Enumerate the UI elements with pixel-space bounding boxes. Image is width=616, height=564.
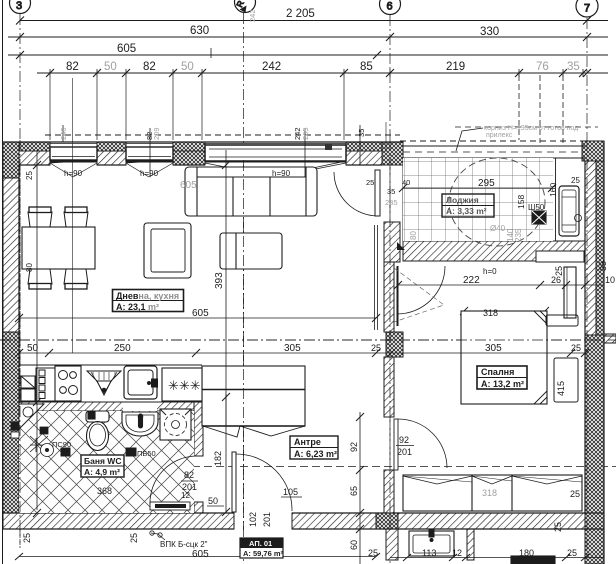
- svg-text:180: 180: [519, 548, 534, 558]
- svg-text:A: 3,33 m²: A: 3,33 m²: [446, 206, 487, 216]
- svg-text:295: 295: [478, 178, 495, 189]
- svg-text:605: 605: [180, 180, 197, 191]
- svg-text:35: 35: [598, 261, 608, 271]
- svg-text:7: 7: [584, 3, 590, 15]
- svg-text:прилекс: прилекс: [486, 132, 513, 139]
- svg-text:A: 13,2 m²: A: 13,2 m²: [481, 379, 524, 389]
- svg-text:182: 182: [213, 451, 223, 466]
- svg-text:250: 250: [114, 343, 131, 354]
- svg-text:40: 40: [402, 178, 410, 187]
- svg-text:Ø40: Ø40: [490, 224, 506, 233]
- svg-text:10: 10: [605, 275, 615, 285]
- svg-text:Лоджия: Лоджия: [446, 195, 479, 205]
- svg-text:209: 209: [152, 127, 161, 140]
- svg-text:158: 158: [516, 195, 526, 209]
- svg-text:50: 50: [104, 61, 117, 73]
- svg-text:35: 35: [567, 61, 580, 73]
- svg-text:25: 25: [571, 343, 581, 353]
- svg-text:102: 102: [248, 512, 258, 527]
- svg-text:201: 201: [262, 512, 272, 527]
- svg-text:25: 25: [368, 548, 378, 558]
- svg-text:A: 23,1 m²: A: 23,1 m²: [116, 302, 159, 312]
- svg-text:330: 330: [480, 26, 499, 38]
- svg-text:25: 25: [570, 489, 580, 499]
- svg-text:Дневна, кухня: Дневна, кухня: [116, 291, 179, 301]
- svg-text:219: 219: [446, 61, 465, 73]
- svg-text:368: 368: [97, 486, 112, 496]
- svg-text:205: 205: [301, 127, 310, 140]
- svg-text:50: 50: [181, 61, 194, 73]
- svg-text:318: 318: [483, 308, 498, 318]
- svg-text:12: 12: [452, 548, 462, 558]
- svg-text:80: 80: [25, 263, 34, 272]
- svg-text:242: 242: [262, 61, 281, 73]
- svg-text:25: 25: [22, 533, 32, 543]
- svg-text:h=90: h=90: [64, 169, 83, 178]
- svg-text:25: 25: [25, 171, 34, 180]
- svg-text:25: 25: [366, 178, 374, 187]
- svg-text:160: 160: [548, 183, 558, 197]
- svg-text:222: 222: [463, 275, 480, 286]
- svg-text:✳✳✳: ✳✳✳: [168, 378, 201, 393]
- svg-text:82: 82: [143, 61, 156, 73]
- svg-text:415: 415: [556, 381, 566, 396]
- svg-text:6: 6: [387, 1, 393, 13]
- svg-text:65: 65: [349, 486, 359, 496]
- svg-text:35: 35: [357, 129, 366, 137]
- svg-text:A: 59,76 m²: A: 59,76 m²: [243, 549, 284, 558]
- svg-text:3: 3: [16, 0, 22, 12]
- svg-text:Антре: Антре: [294, 437, 321, 447]
- svg-text:A: 4,9 m²: A: 4,9 m²: [84, 467, 120, 477]
- svg-text:201: 201: [397, 447, 412, 457]
- svg-text:76: 76: [536, 61, 549, 73]
- svg-text:50: 50: [208, 496, 218, 506]
- svg-text:корниз Н=195см от готов под: корниз Н=195см от готов под: [484, 125, 578, 132]
- svg-text:92: 92: [349, 442, 359, 452]
- svg-text:25: 25: [129, 533, 139, 543]
- svg-text:305: 305: [284, 343, 301, 354]
- svg-text:235: 235: [385, 198, 398, 207]
- svg-text:h=90: h=90: [140, 169, 159, 178]
- svg-text:Баня WC: Баня WC: [84, 456, 121, 466]
- svg-text:82: 82: [184, 470, 194, 480]
- svg-text:113: 113: [422, 548, 436, 558]
- svg-text:35: 35: [387, 187, 395, 196]
- svg-text:82: 82: [66, 61, 79, 73]
- svg-text:50: 50: [27, 343, 39, 354]
- svg-text:h=90: h=90: [272, 169, 291, 178]
- svg-text:12: 12: [181, 491, 190, 500]
- svg-text:305: 305: [485, 343, 502, 354]
- svg-text:85: 85: [360, 61, 373, 73]
- svg-text:25: 25: [571, 176, 580, 185]
- svg-text:393: 393: [214, 272, 225, 289]
- svg-text:АП. 01: АП. 01: [249, 539, 272, 548]
- svg-text:60: 60: [349, 540, 359, 550]
- svg-text:26: 26: [551, 275, 561, 285]
- svg-text:605: 605: [192, 308, 209, 319]
- svg-text:235: 235: [514, 228, 523, 242]
- svg-text:ПС90: ПС90: [52, 440, 71, 449]
- svg-text:ПБ50: ПБ50: [137, 449, 156, 458]
- svg-text:ВПК Б-сцк 2": ВПК Б-сцк 2": [160, 540, 208, 549]
- svg-text:605: 605: [117, 43, 136, 55]
- svg-text:A: 6,23 m²: A: 6,23 m²: [294, 449, 337, 459]
- svg-text:240: 240: [59, 127, 68, 140]
- svg-text:Ш50: Ш50: [528, 203, 545, 212]
- svg-text:92: 92: [399, 435, 409, 445]
- svg-text:630: 630: [190, 25, 209, 37]
- svg-text:h=0: h=0: [483, 267, 497, 276]
- svg-text:80: 80: [409, 231, 418, 240]
- svg-text:242: 242: [248, 9, 257, 22]
- svg-text:25: 25: [371, 343, 381, 353]
- svg-text:318: 318: [482, 488, 497, 498]
- svg-text:2 205: 2 205: [286, 8, 315, 20]
- svg-text:25: 25: [567, 548, 577, 558]
- svg-text:Спалня: Спалня: [481, 367, 514, 377]
- svg-text:605: 605: [192, 549, 209, 560]
- svg-text:25: 25: [553, 522, 563, 532]
- svg-text:105: 105: [283, 487, 298, 497]
